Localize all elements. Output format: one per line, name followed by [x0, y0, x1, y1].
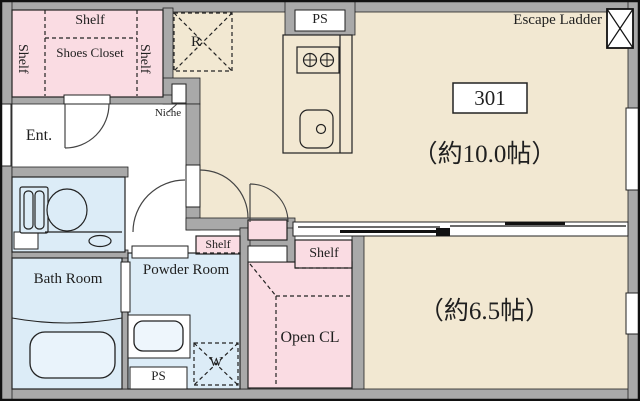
counter-outline	[283, 35, 352, 153]
floor-plan: Shelf Shelf Shelf Shoes Closet R PS Esca…	[0, 0, 640, 401]
wall-ent-kitchen-upper	[186, 104, 200, 167]
doorway-nook	[248, 220, 287, 240]
meter-box	[14, 232, 38, 249]
sliding-leaf-stop	[436, 228, 450, 236]
escape-hatch-icon	[607, 9, 633, 48]
nook-opening	[248, 246, 287, 262]
window-upper-icon	[626, 108, 639, 190]
shoes-closet-area	[12, 10, 163, 97]
powder-shelf-area	[196, 236, 240, 254]
room-number-box	[453, 83, 527, 113]
window-lower-icon	[626, 293, 639, 334]
opencl-shelf-area	[295, 240, 352, 268]
wall-opencl-bedroom	[352, 236, 364, 389]
wall-ent-toilet	[12, 167, 128, 177]
niche-recess	[172, 84, 186, 103]
ps-box-bottom	[130, 367, 187, 389]
toilet-bowl	[47, 189, 87, 231]
closet-door-opening	[64, 95, 110, 104]
sliding-leaf-thick	[505, 222, 565, 225]
ps-box-top	[295, 10, 345, 31]
vanity-sink-icon	[134, 321, 183, 351]
floor-plan-graphics	[0, 0, 640, 401]
kitchen-counter	[283, 35, 352, 153]
sliding-leaf-thick	[340, 230, 440, 233]
bath-door-opening	[121, 262, 130, 312]
bedroom-floor	[364, 236, 628, 389]
living-door-opening	[186, 165, 200, 207]
powder-door	[132, 246, 188, 258]
living-dining-kitchen-floor	[173, 12, 628, 236]
bathtub-icon	[30, 332, 115, 378]
sliding-door-track	[293, 222, 628, 236]
